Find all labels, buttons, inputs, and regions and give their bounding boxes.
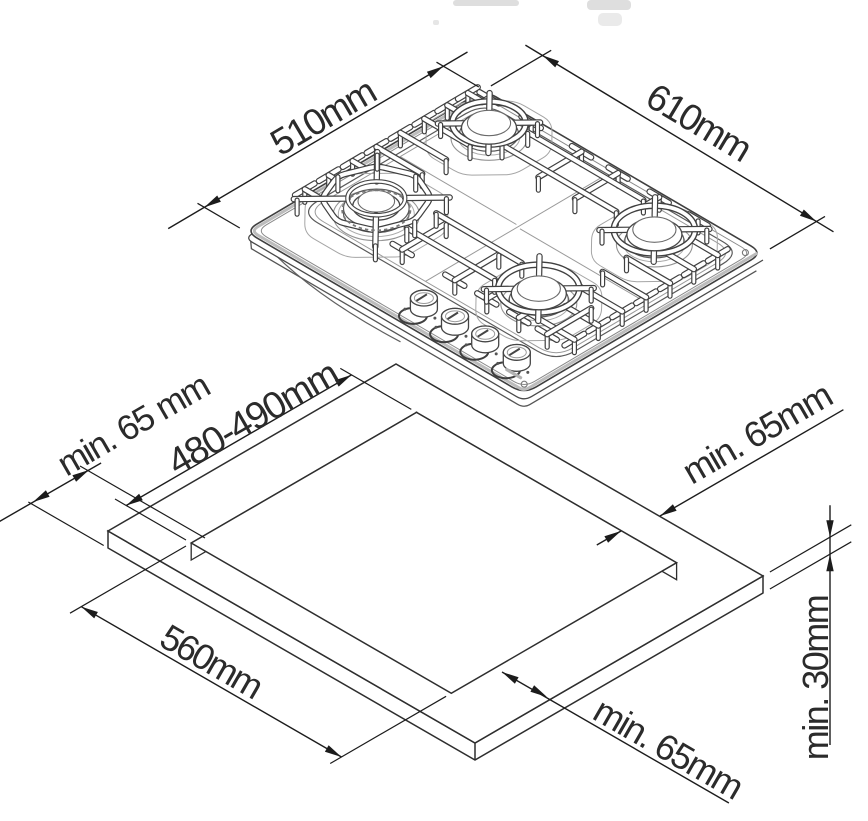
svg-text:min. 30mm: min. 30mm — [795, 596, 836, 761]
